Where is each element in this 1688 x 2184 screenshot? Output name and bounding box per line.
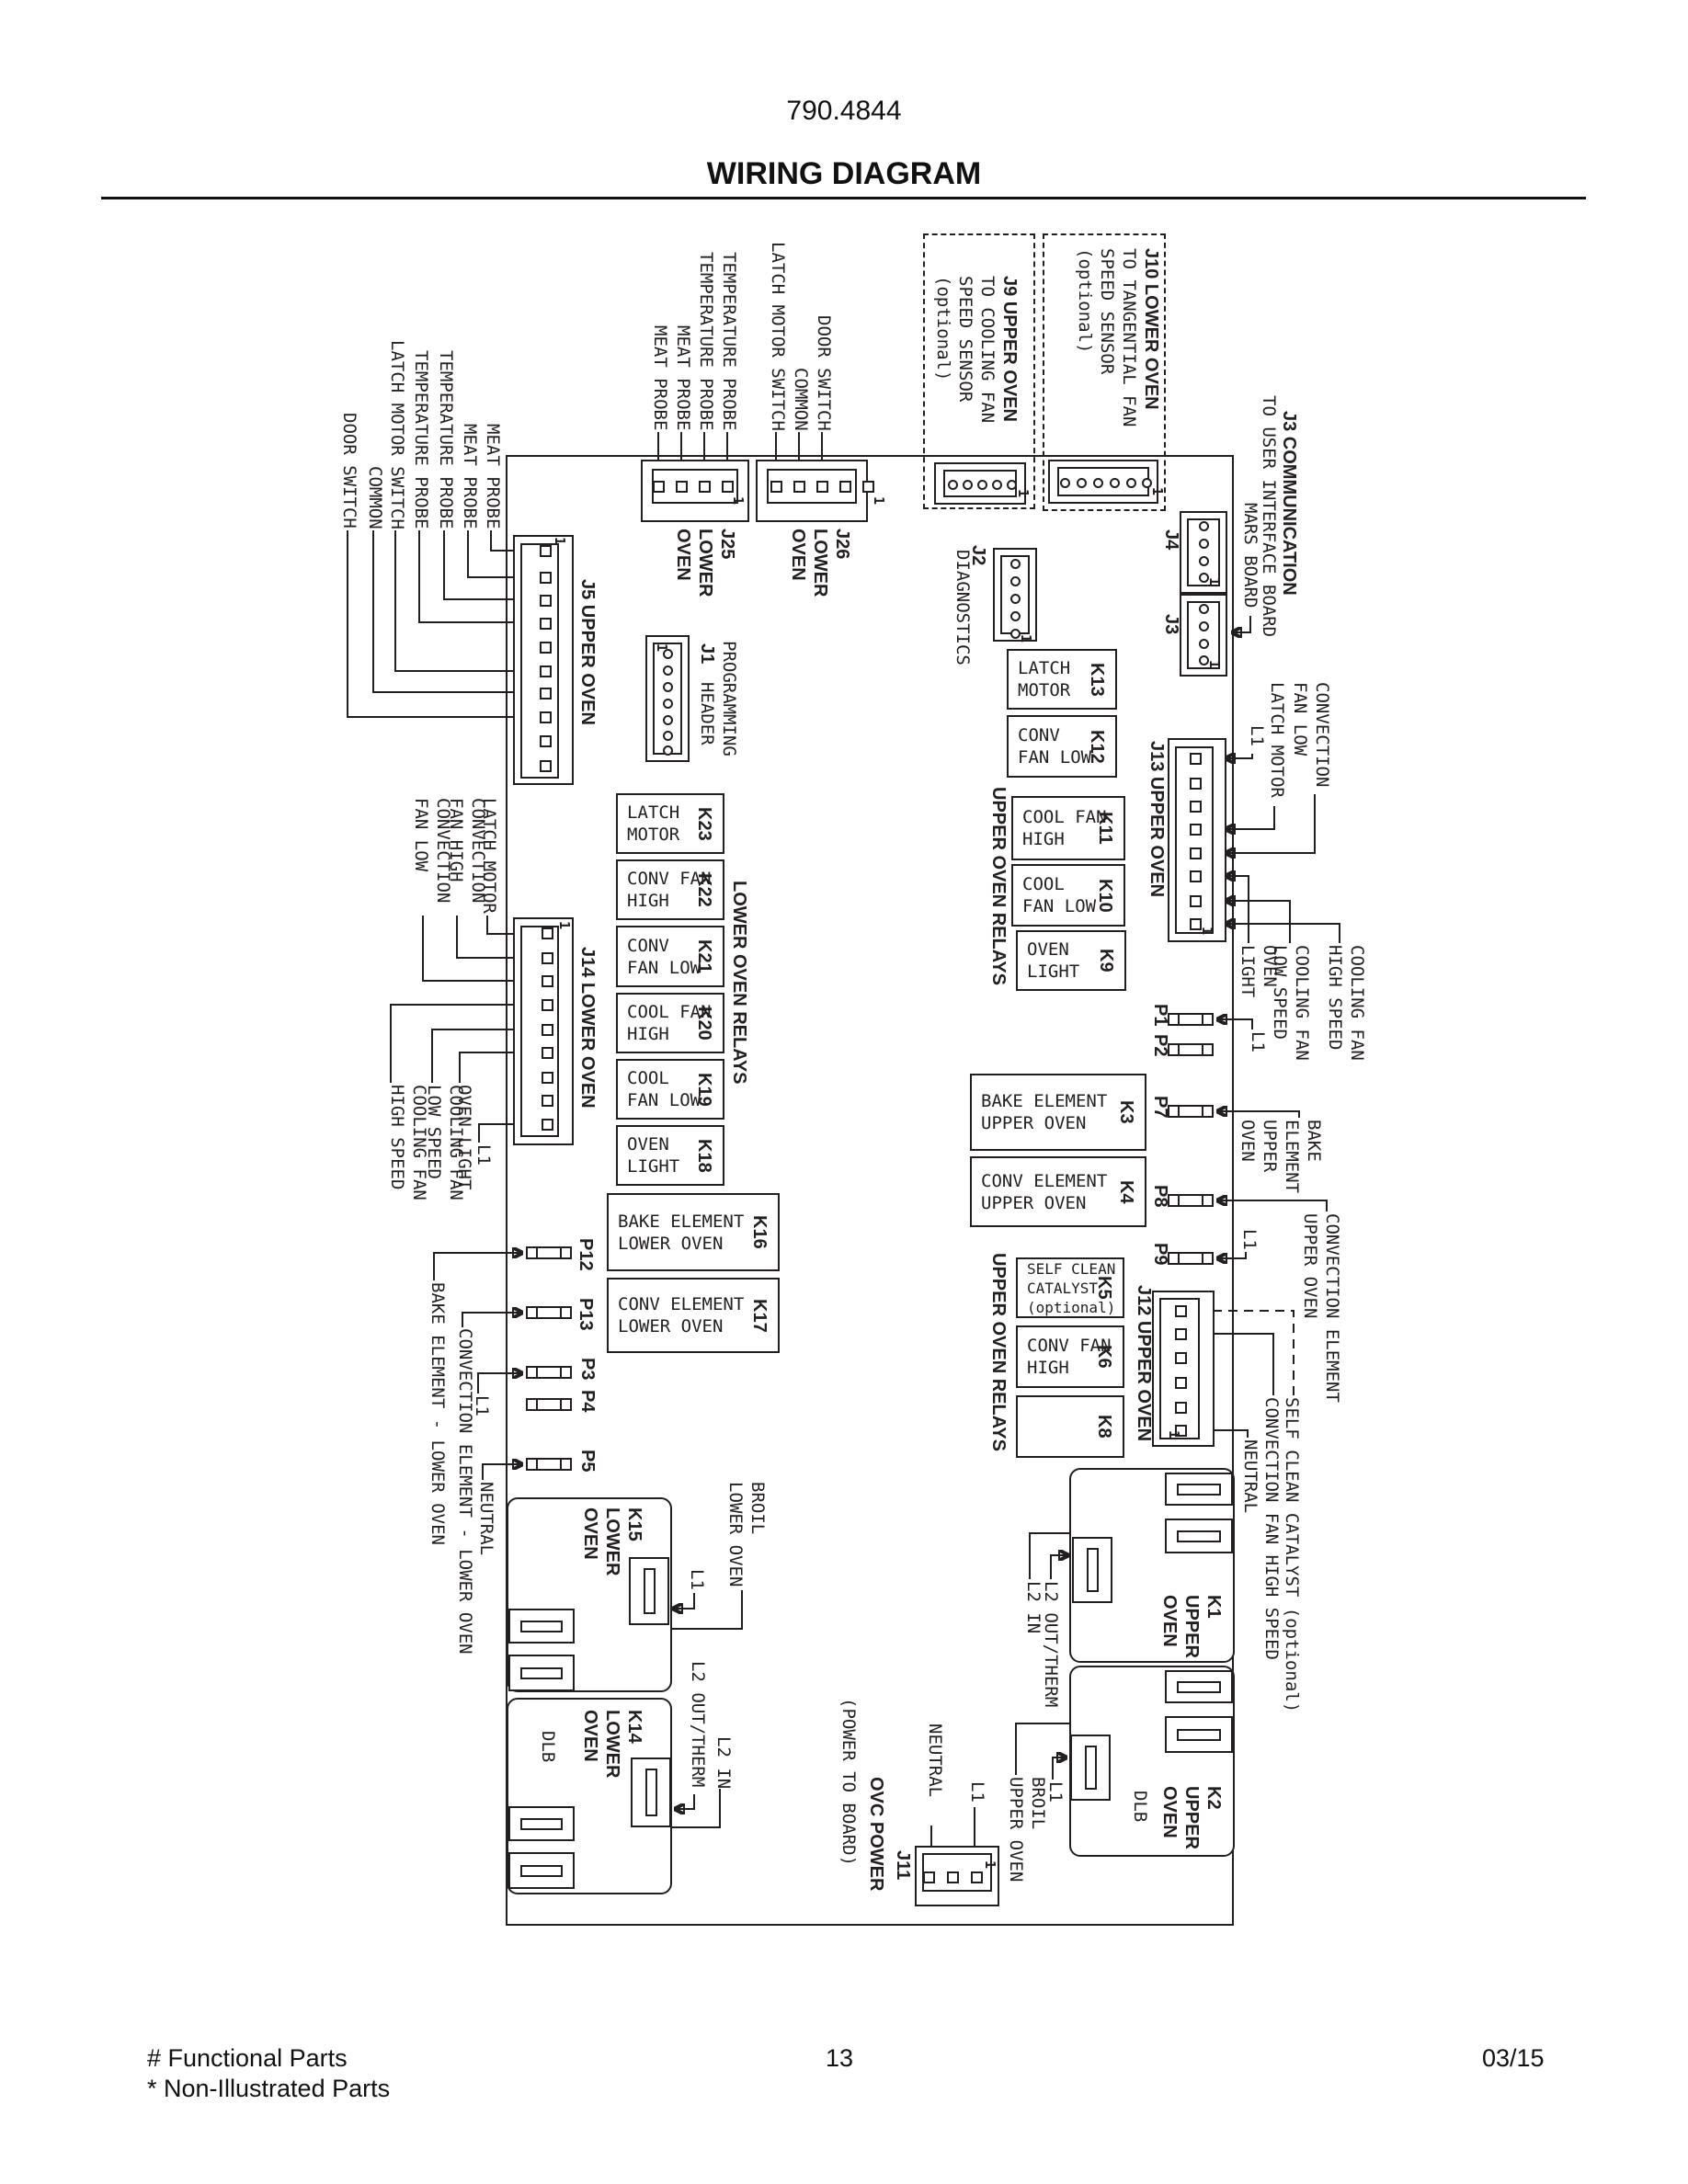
label-ovc-power: OVC POWER bbox=[865, 1777, 887, 1891]
label-j14-lower-oven: J14 LOWER OVEN bbox=[576, 947, 599, 1109]
terminal-slot bbox=[520, 1865, 563, 1877]
connector-j1-pin-3 bbox=[663, 682, 673, 692]
footer-note-non-illustrated: * Non-Illustrated Parts bbox=[147, 2075, 390, 2103]
pin1-marker: 1 bbox=[1206, 660, 1223, 668]
connector-j10-pin-3 bbox=[1093, 478, 1103, 488]
connector-j4-pin-1 bbox=[1199, 521, 1209, 531]
page-number: 13 bbox=[826, 2044, 853, 2073]
label-dlb: DLB bbox=[1129, 1791, 1151, 1822]
pin1-marker: 1 bbox=[1206, 577, 1223, 586]
connector-j5-pin-1 bbox=[540, 545, 552, 557]
connector-j25-pin-3 bbox=[699, 481, 711, 493]
label-common: COMMON bbox=[364, 466, 386, 529]
label-l2-out-therm: L2 OUT/THERM bbox=[687, 1661, 709, 1787]
connector-j5-pin-9 bbox=[540, 735, 552, 747]
connector-j13-pin-6 bbox=[1190, 870, 1202, 882]
relay-k5-number: K5 bbox=[1093, 1263, 1114, 1313]
connector-j14-pin-1 bbox=[542, 927, 553, 939]
connector-j13-pin-7 bbox=[1190, 895, 1202, 907]
relay-k12-number: K12 bbox=[1086, 721, 1107, 772]
connector-j26-pin-4 bbox=[839, 481, 851, 493]
label-cooling-fan-low-speed: COOLING FANLOW SPEED bbox=[1269, 945, 1313, 1061]
connector-j25-pin-2 bbox=[676, 481, 688, 493]
terminal-slot bbox=[520, 1621, 563, 1632]
connector-j26-pin-3 bbox=[816, 481, 828, 493]
label-p8: P8 bbox=[1149, 1185, 1171, 1207]
connector-j10-pin-6 bbox=[1142, 478, 1152, 488]
terminal-slot bbox=[645, 1769, 657, 1816]
connector-j3-pin-1 bbox=[1199, 604, 1209, 614]
connector-j5-pin-7 bbox=[540, 688, 552, 700]
relay-k13-number: K13 bbox=[1086, 654, 1107, 704]
connector-j2-pin-2 bbox=[1010, 576, 1021, 586]
label-j11: J11 bbox=[892, 1850, 914, 1880]
terminal-slot bbox=[1177, 1530, 1221, 1542]
label-upper-oven-relays: UPPER OVEN RELAYS bbox=[987, 787, 1009, 985]
label-p4: P4 bbox=[576, 1390, 599, 1412]
pin1-marker: 1 bbox=[1015, 489, 1032, 497]
connector-j14-pin-9 bbox=[542, 1119, 553, 1131]
connector-j12-pin-5 bbox=[1175, 1402, 1187, 1414]
label-dlb: DLB bbox=[537, 1731, 559, 1762]
label-neutral: NEUTRAL bbox=[1239, 1439, 1261, 1513]
connector-j14-pin-5 bbox=[542, 1024, 553, 1036]
relay-k20-number: K20 bbox=[693, 998, 714, 1048]
relay-k9-number: K9 bbox=[1095, 936, 1116, 985]
label-broil-lower-oven: BROILLOWER OVEN bbox=[724, 1482, 769, 1587]
relay-k10-label: COOL FAN LOW bbox=[1022, 873, 1094, 917]
label-diagnostics: DIAGNOSTICS bbox=[952, 550, 974, 665]
connector-j5-pin-5 bbox=[540, 642, 552, 654]
connector-j25-pin-4 bbox=[722, 481, 734, 493]
terminal-p12 bbox=[526, 1246, 572, 1259]
connector-j14-pin-6 bbox=[542, 1047, 553, 1059]
label-convection-fan-low: CONVECTIONFAN LOW bbox=[410, 798, 454, 903]
label-cooling-fan-high-speed: COOLING FANHIGH SPEED bbox=[1324, 945, 1368, 1061]
connector-j11-pin-3 bbox=[971, 1871, 983, 1883]
label-convection-fan-low: CONVECTIONFAN LOW bbox=[1289, 682, 1333, 787]
label-p5: P5 bbox=[576, 1450, 599, 1472]
connector-j26-pin-1 bbox=[770, 481, 782, 493]
connector-j5-pin-3 bbox=[540, 595, 552, 607]
relay-k19-number: K19 bbox=[693, 1064, 714, 1114]
label-latch-motor-switch: LATCH MOTOR SWITCH bbox=[767, 242, 789, 431]
terminal-p3 bbox=[526, 1366, 572, 1379]
connector-j14-pin-8 bbox=[542, 1095, 553, 1107]
label-meat-probe: MEAT PROBE bbox=[649, 325, 671, 430]
label-convection-fan-high-speed: CONVECTION FAN HIGH SPEED bbox=[1260, 1397, 1283, 1660]
label-temperature-probe: TEMPERATURE PROBE bbox=[435, 350, 457, 529]
pin1-marker: 1 bbox=[1199, 927, 1215, 935]
relay-k6-label: CONV FAN HIGH bbox=[1027, 1335, 1093, 1379]
connector-j12-pin-1 bbox=[1175, 1305, 1187, 1317]
label-programming: PROGRAMMING bbox=[718, 641, 740, 756]
connector-j1-pin-6 bbox=[663, 731, 673, 741]
connector-j14-pin-3 bbox=[542, 975, 553, 987]
terminal-p13 bbox=[526, 1306, 572, 1319]
connector-j12-inner bbox=[1159, 1298, 1200, 1439]
label-mars-board: MARS BOARD bbox=[1239, 503, 1261, 608]
manual-page: 790.4844 WIRING DIAGRAM bbox=[0, 0, 1688, 2184]
connector-j2-pin-3 bbox=[1010, 594, 1021, 604]
relay-k3-number: K3 bbox=[1115, 1079, 1136, 1145]
connector-j9-pin-3 bbox=[977, 480, 987, 490]
connector-j1-pin-5 bbox=[663, 715, 673, 725]
connector-j11-pin-2 bbox=[947, 1871, 959, 1883]
connector-j9-pin-1 bbox=[948, 480, 958, 490]
label-l1: L1 bbox=[686, 1569, 708, 1590]
label-j10-lower-oven-to-tangential-fan-speed-sensor-optional: J10 LOWER OVENTO TANGENTIAL FANSPEED SEN… bbox=[1074, 248, 1162, 427]
label-l1: L1 bbox=[1246, 725, 1268, 746]
label-p2: P2 bbox=[1149, 1034, 1171, 1056]
relay-k9-label: OVEN LIGHT bbox=[1027, 938, 1095, 983]
relay-k16-label: BAKE ELEMENT LOWER OVEN bbox=[618, 1211, 748, 1255]
relay-k11-number: K11 bbox=[1094, 802, 1115, 855]
relay-k17-number: K17 bbox=[748, 1283, 770, 1348]
connector-j9-pin-2 bbox=[963, 480, 973, 490]
label-self-clean-catalyst-optional: SELF CLEAN CATALYST (optional) bbox=[1281, 1397, 1303, 1712]
connector-j11-pin-1 bbox=[923, 1871, 935, 1883]
label-upper-oven-relays: UPPER OVEN RELAYS bbox=[987, 1253, 1009, 1451]
connector-j14-pin-2 bbox=[542, 952, 553, 964]
label-j25-lower-oven: J25LOWEROVEN bbox=[672, 529, 738, 597]
connector-j5-pin-10 bbox=[540, 760, 552, 772]
label-convection-element-lower-oven: CONVECTION ELEMENT - LOWER OVEN bbox=[454, 1328, 476, 1655]
terminal-p2 bbox=[1168, 1043, 1214, 1056]
connector-j5-pin-4 bbox=[540, 618, 552, 630]
terminal-slot bbox=[1177, 1681, 1221, 1693]
label-j9-upper-oven-to-cooling-fan-speed-sensor-optional: J9 UPPER OVENTO COOLING FANSPEED SENSOR(… bbox=[932, 276, 1021, 423]
connector-j14-pin-4 bbox=[542, 999, 553, 1011]
label-k14-lower-oven: K14LOWEROVEN bbox=[579, 1710, 645, 1778]
relay-k21-label: CONV FAN LOW bbox=[627, 935, 693, 979]
relay-k18-number: K18 bbox=[693, 1131, 714, 1180]
connector-j13-pin-3 bbox=[1190, 801, 1202, 813]
connector-j1-pin-7 bbox=[663, 745, 673, 756]
terminal-slot bbox=[520, 1818, 563, 1830]
relay-k12-label: CONV FAN LOW bbox=[1018, 724, 1086, 768]
connector-j10-pin-5 bbox=[1126, 478, 1136, 488]
connector-j25-pin-1 bbox=[653, 481, 665, 493]
label-lower-oven-relays: LOWER OVEN RELAYS bbox=[728, 881, 750, 1085]
label-header: HEADER bbox=[696, 682, 718, 745]
connector-j13-pin-2 bbox=[1190, 778, 1202, 790]
relay-k4-number: K4 bbox=[1115, 1162, 1136, 1222]
terminal-p5 bbox=[526, 1458, 572, 1471]
connector-j2-pin-4 bbox=[1010, 611, 1021, 621]
terminal-p4 bbox=[526, 1398, 572, 1411]
terminal-slot bbox=[1177, 1484, 1221, 1496]
label-common: COMMON bbox=[790, 368, 812, 431]
connector-j10-pin-4 bbox=[1110, 478, 1120, 488]
connector-j9-pin-5 bbox=[1007, 480, 1017, 490]
label-neutral: NEUTRAL bbox=[924, 1723, 946, 1797]
relay-k18-label: OVEN LIGHT bbox=[627, 1133, 693, 1177]
pin1-marker: 1 bbox=[556, 921, 573, 929]
terminal-p9 bbox=[1168, 1252, 1214, 1265]
label-p3: P3 bbox=[576, 1358, 599, 1380]
connector-j3-pin-2 bbox=[1199, 621, 1209, 631]
relay-k20-label: COOL FAN HIGH bbox=[627, 1001, 693, 1045]
relay-k13-label: LATCH MOTOR bbox=[1018, 657, 1086, 701]
label-temperature-probe: TEMPERATURE PROBE bbox=[718, 252, 740, 430]
terminal-slot bbox=[1085, 1746, 1097, 1790]
connector-j4-pin-3 bbox=[1199, 556, 1209, 566]
label-l1: L1 bbox=[1238, 1229, 1260, 1250]
pin1-marker: 1 bbox=[1149, 487, 1166, 495]
relay-k10-number: K10 bbox=[1094, 870, 1115, 921]
connector-j1-pin-2 bbox=[663, 665, 673, 676]
terminal-slot bbox=[1177, 1729, 1221, 1741]
terminal-p7 bbox=[1168, 1105, 1214, 1118]
terminal-p1 bbox=[1168, 1013, 1214, 1026]
relay-k22-number: K22 bbox=[693, 865, 714, 915]
relay-k17-label: CONV ELEMENT LOWER OVEN bbox=[618, 1293, 748, 1337]
label-temperature-probe: TEMPERATURE PROBE bbox=[695, 252, 717, 430]
connector-j14-inner bbox=[520, 926, 559, 1137]
terminal-slot bbox=[520, 1667, 563, 1679]
relay-k19-label: COOL FAN LOW bbox=[627, 1067, 693, 1111]
relay-k3-label: BAKE ELEMENT UPPER OVEN bbox=[981, 1090, 1115, 1134]
connector-j10-pin-2 bbox=[1077, 478, 1087, 488]
connector-j1-pin-4 bbox=[663, 699, 673, 709]
label-cooling-fan-high-speed: COOLING FANHIGH SPEED bbox=[386, 1085, 430, 1200]
label-j1: J1 bbox=[696, 643, 718, 664]
relay-k11-label: COOL FAN HIGH bbox=[1022, 806, 1094, 850]
footer-note-functional: # Functional Parts bbox=[147, 2044, 348, 2073]
label-k1-upper-oven: K1UPPEROVEN bbox=[1158, 1595, 1225, 1658]
relay-k5-label: SELF CLEAN CATALYST (optional) bbox=[1027, 1259, 1093, 1317]
relay-k4-label: CONV ELEMENT UPPER OVEN bbox=[981, 1170, 1115, 1214]
connector-j4-pin-2 bbox=[1199, 539, 1209, 549]
connector-j3-pin-3 bbox=[1199, 639, 1209, 649]
relay-k6-number: K6 bbox=[1093, 1331, 1114, 1382]
terminal-p8 bbox=[1168, 1194, 1214, 1207]
relay-k21-number: K21 bbox=[693, 931, 714, 982]
relay-k22-label: CONV FAN HIGH bbox=[627, 868, 693, 912]
label-convection-element-upper-oven: CONVECTION ELEMENTUPPER OVEN bbox=[1299, 1213, 1343, 1403]
connector-j12-pin-2 bbox=[1175, 1328, 1187, 1340]
pin1-marker: 1 bbox=[1018, 634, 1034, 643]
relay-k8-number: K8 bbox=[1093, 1401, 1114, 1452]
label-j12-upper-oven: J12 UPPER OVEN bbox=[1133, 1285, 1155, 1441]
label-temperature-probe: TEMPERATURE PROBE bbox=[410, 350, 432, 529]
relay-k23-label: LATCH MOTOR bbox=[627, 802, 693, 846]
label-l1: L1 bbox=[1247, 1031, 1269, 1052]
connector-j12-pin-4 bbox=[1175, 1377, 1187, 1389]
label-k2-upper-oven: K2UPPEROVEN bbox=[1158, 1786, 1225, 1849]
revision-date: 03/15 bbox=[1482, 2044, 1545, 2073]
connector-j5-pin-2 bbox=[540, 572, 552, 584]
label-broil-upper-oven: BROILUPPER OVEN bbox=[1005, 1777, 1049, 1882]
label-power-to-board: (POWER TO BOARD) bbox=[838, 1698, 860, 1866]
pin1-marker: 1 bbox=[654, 643, 670, 652]
label-latch-motor: LATCH MOTOR bbox=[1266, 682, 1288, 798]
pin1-marker: 1 bbox=[1166, 1430, 1182, 1439]
label-latch-motor-switch: LATCH MOTOR SWITCH bbox=[386, 340, 408, 529]
label-meat-probe: MEAT PROBE bbox=[482, 424, 504, 529]
relay-k16-number: K16 bbox=[748, 1199, 770, 1266]
connector-j26-pin-5 bbox=[862, 481, 874, 493]
label-l1: L1 bbox=[473, 1144, 495, 1166]
label-l1: L1 bbox=[966, 1781, 988, 1803]
label-j5-upper-oven: J5 UPPER OVEN bbox=[576, 579, 599, 725]
label-p9: P9 bbox=[1149, 1243, 1171, 1265]
connector-j13-pin-1 bbox=[1190, 753, 1202, 765]
pin1-marker: 1 bbox=[552, 537, 568, 545]
label-j4: J4 bbox=[1160, 529, 1182, 550]
label-p13: P13 bbox=[575, 1298, 597, 1331]
label-j3-communication: J3 COMMUNICATION bbox=[1278, 411, 1300, 596]
label-door-switch: DOOR SWITCH bbox=[813, 315, 835, 431]
terminal-slot bbox=[1087, 1548, 1099, 1592]
label-l2-in: L2 IN bbox=[713, 1736, 735, 1789]
connector-j26-pin-2 bbox=[793, 481, 805, 493]
label-bake-element-upper-oven: BAKEELEMENTUPPEROVEN bbox=[1237, 1120, 1325, 1193]
connector-j14-pin-7 bbox=[542, 1072, 553, 1084]
label-l2-in: L2 IN bbox=[1022, 1581, 1044, 1633]
label-j13-upper-oven: J13 UPPER OVEN bbox=[1146, 741, 1168, 897]
label-bake-element-lower-oven: BAKE ELEMENT - LOWER OVEN bbox=[427, 1282, 449, 1545]
label-l1: L1 bbox=[471, 1395, 493, 1416]
connector-j5-pin-6 bbox=[540, 665, 552, 677]
label-p7: P7 bbox=[1149, 1096, 1171, 1118]
connector-j5-pin-8 bbox=[540, 711, 552, 723]
relay-k23-number: K23 bbox=[693, 799, 714, 848]
connector-j2-pin-1 bbox=[1010, 559, 1021, 569]
connector-j9-pin-4 bbox=[992, 480, 1002, 490]
label-meat-probe: MEAT PROBE bbox=[672, 325, 694, 430]
label-p12: P12 bbox=[575, 1238, 597, 1271]
label-k15-lower-oven: K15LOWEROVEN bbox=[579, 1507, 645, 1575]
label-meat-probe: MEAT PROBE bbox=[459, 424, 481, 529]
connector-j10-pin-1 bbox=[1060, 478, 1070, 488]
label-p1: P1 bbox=[1149, 1004, 1171, 1026]
label-neutral: NEUTRAL bbox=[475, 1482, 497, 1555]
label-j3: J3 bbox=[1160, 614, 1182, 634]
pin1-marker: 1 bbox=[982, 1860, 998, 1869]
connector-j13-pin-4 bbox=[1190, 824, 1202, 836]
connector-j13-pin-5 bbox=[1190, 847, 1202, 859]
pin1-marker: 1 bbox=[730, 496, 747, 505]
pin1-marker: 1 bbox=[871, 496, 887, 505]
label-j26-lower-oven: J26LOWEROVEN bbox=[787, 529, 853, 597]
label-door-switch: DOOR SWITCH bbox=[338, 413, 360, 529]
connector-j12-pin-3 bbox=[1175, 1352, 1187, 1364]
